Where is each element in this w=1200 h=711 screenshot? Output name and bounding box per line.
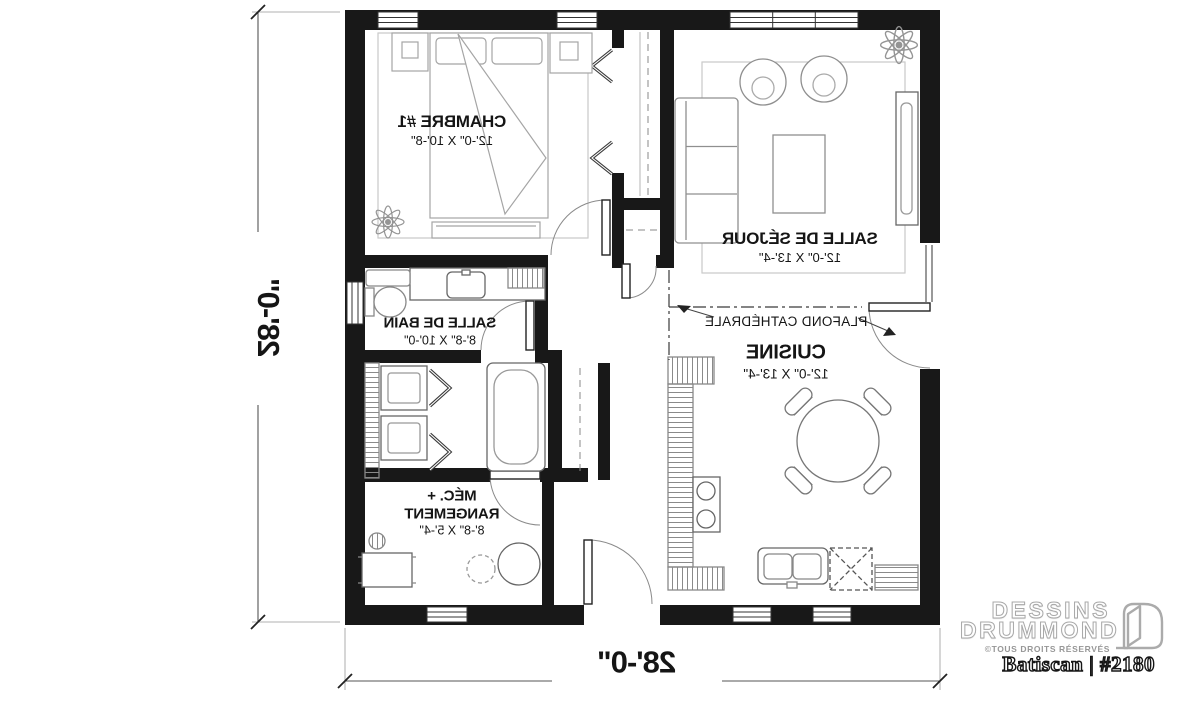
model-text: Batiscan | #2180 [1002,652,1155,676]
mechanical-window [427,607,467,622]
pillow [492,38,542,64]
table-lamp [560,42,578,60]
room-dims: 12'-0" X 13'-4" [743,366,828,382]
armchair [801,56,847,102]
room-name-line2: RANGEMENT [405,505,500,523]
brand-text: DRUMMOND [960,617,1119,643]
burner [697,482,715,500]
dimension-height: 28'-0" [250,273,286,363]
room-name: CHAMBRE #1 [398,112,507,132]
sink-bowl [793,554,821,579]
plant [372,206,404,238]
room-dims: 8'-8" X 5'-4" [405,524,500,539]
mechanical-fixtures [358,533,540,587]
room-label-mechanical: MÉC. + RANGEMENT 8'-8" X 5'-4" [405,487,500,538]
bathroom-window [347,282,363,324]
faucet [462,270,470,275]
bathroom-shelves [508,268,544,288]
kitchen-counter-south [668,567,724,590]
toilet-tank [365,288,374,316]
front-door [584,540,660,625]
armchair [740,59,786,105]
kitchen-window-left [733,607,771,622]
bedroom-window-left [378,12,418,28]
room-dims: 12'-0" X 13'-4" [722,250,878,265]
floor-drain [369,533,385,549]
plant [881,27,918,64]
note-text: PLAFOND CATHÉDRALE [705,314,868,329]
floor-plan-page: CHAMBRE #1 12'-0" X 10'-8" SALLE DE SÉJO… [0,0,1200,711]
faucet [787,582,797,588]
kitchen-fixtures [668,357,918,590]
dimension-width: 28'-0" [598,645,676,682]
dimension-height-text: 28'-0" [250,279,286,357]
room-name-line1: MÉC. + [405,487,500,505]
bedroom-door [551,200,610,255]
kitchen-counter-west [668,384,693,567]
room-label-living: SALLE DE SÉJOUR 12'-0" X 13'-4" [722,229,878,265]
cabinet [366,270,410,286]
dryer-door [388,423,420,453]
sofa [675,98,738,243]
living-window [730,12,858,28]
dishwasher [830,548,872,590]
room-label-bedroom: CHAMBRE #1 12'-0" X 10'-8" [398,112,507,148]
dimension-width-text: 28'-0" [598,645,676,680]
sink-bowl [764,554,792,579]
kitchen-window-right [813,607,851,622]
room-label-bathroom: SALLE DE BAIN 8'-8" X 10'-0" [384,314,496,347]
room-name: CUISINE [743,342,828,366]
water-heater [498,543,540,585]
room-dims: 12'-0" X 10'-8" [398,133,507,148]
bedroom-window-right [557,12,597,28]
room-name: SALLE DE BAIN [384,314,496,332]
brand-name-line2: DRUMMOND [960,620,1110,640]
leader-arrow [883,327,896,336]
burner [697,510,715,528]
toilet [374,287,406,317]
kitchen-counter-top [668,357,714,384]
coffee-table [773,135,825,213]
freezer [362,553,412,587]
table-lamp [402,42,418,58]
fridge [875,565,918,590]
bathroom-fixtures [365,268,545,317]
drummond-door-icon [1112,596,1168,652]
laundry-counter [365,363,379,478]
laundry-door-chevrons [430,370,450,470]
equipment-dashed [467,555,495,583]
washer-door [388,373,420,403]
bathroom-sink [447,272,485,298]
living-furniture [675,56,918,243]
cathedral-ceiling-note: PLAFOND CATHÉDRALE [705,314,868,330]
dining-table [797,400,879,482]
room-dims: 8'-8" X 10'-0" [384,333,496,348]
closet-bifold-doors [592,50,612,174]
tv-console [896,92,918,225]
plan-model-number: Batiscan | #2180 [955,652,1155,677]
hall-closet-door [622,264,656,298]
bed-bench [432,222,540,238]
room-name: SALLE DE SÉJOUR [722,229,878,249]
room-label-kitchen: CUISINE 12'-0" X 13'-4" [743,342,828,383]
laundry-fixtures [365,363,545,478]
bathtub-interior [494,370,538,464]
